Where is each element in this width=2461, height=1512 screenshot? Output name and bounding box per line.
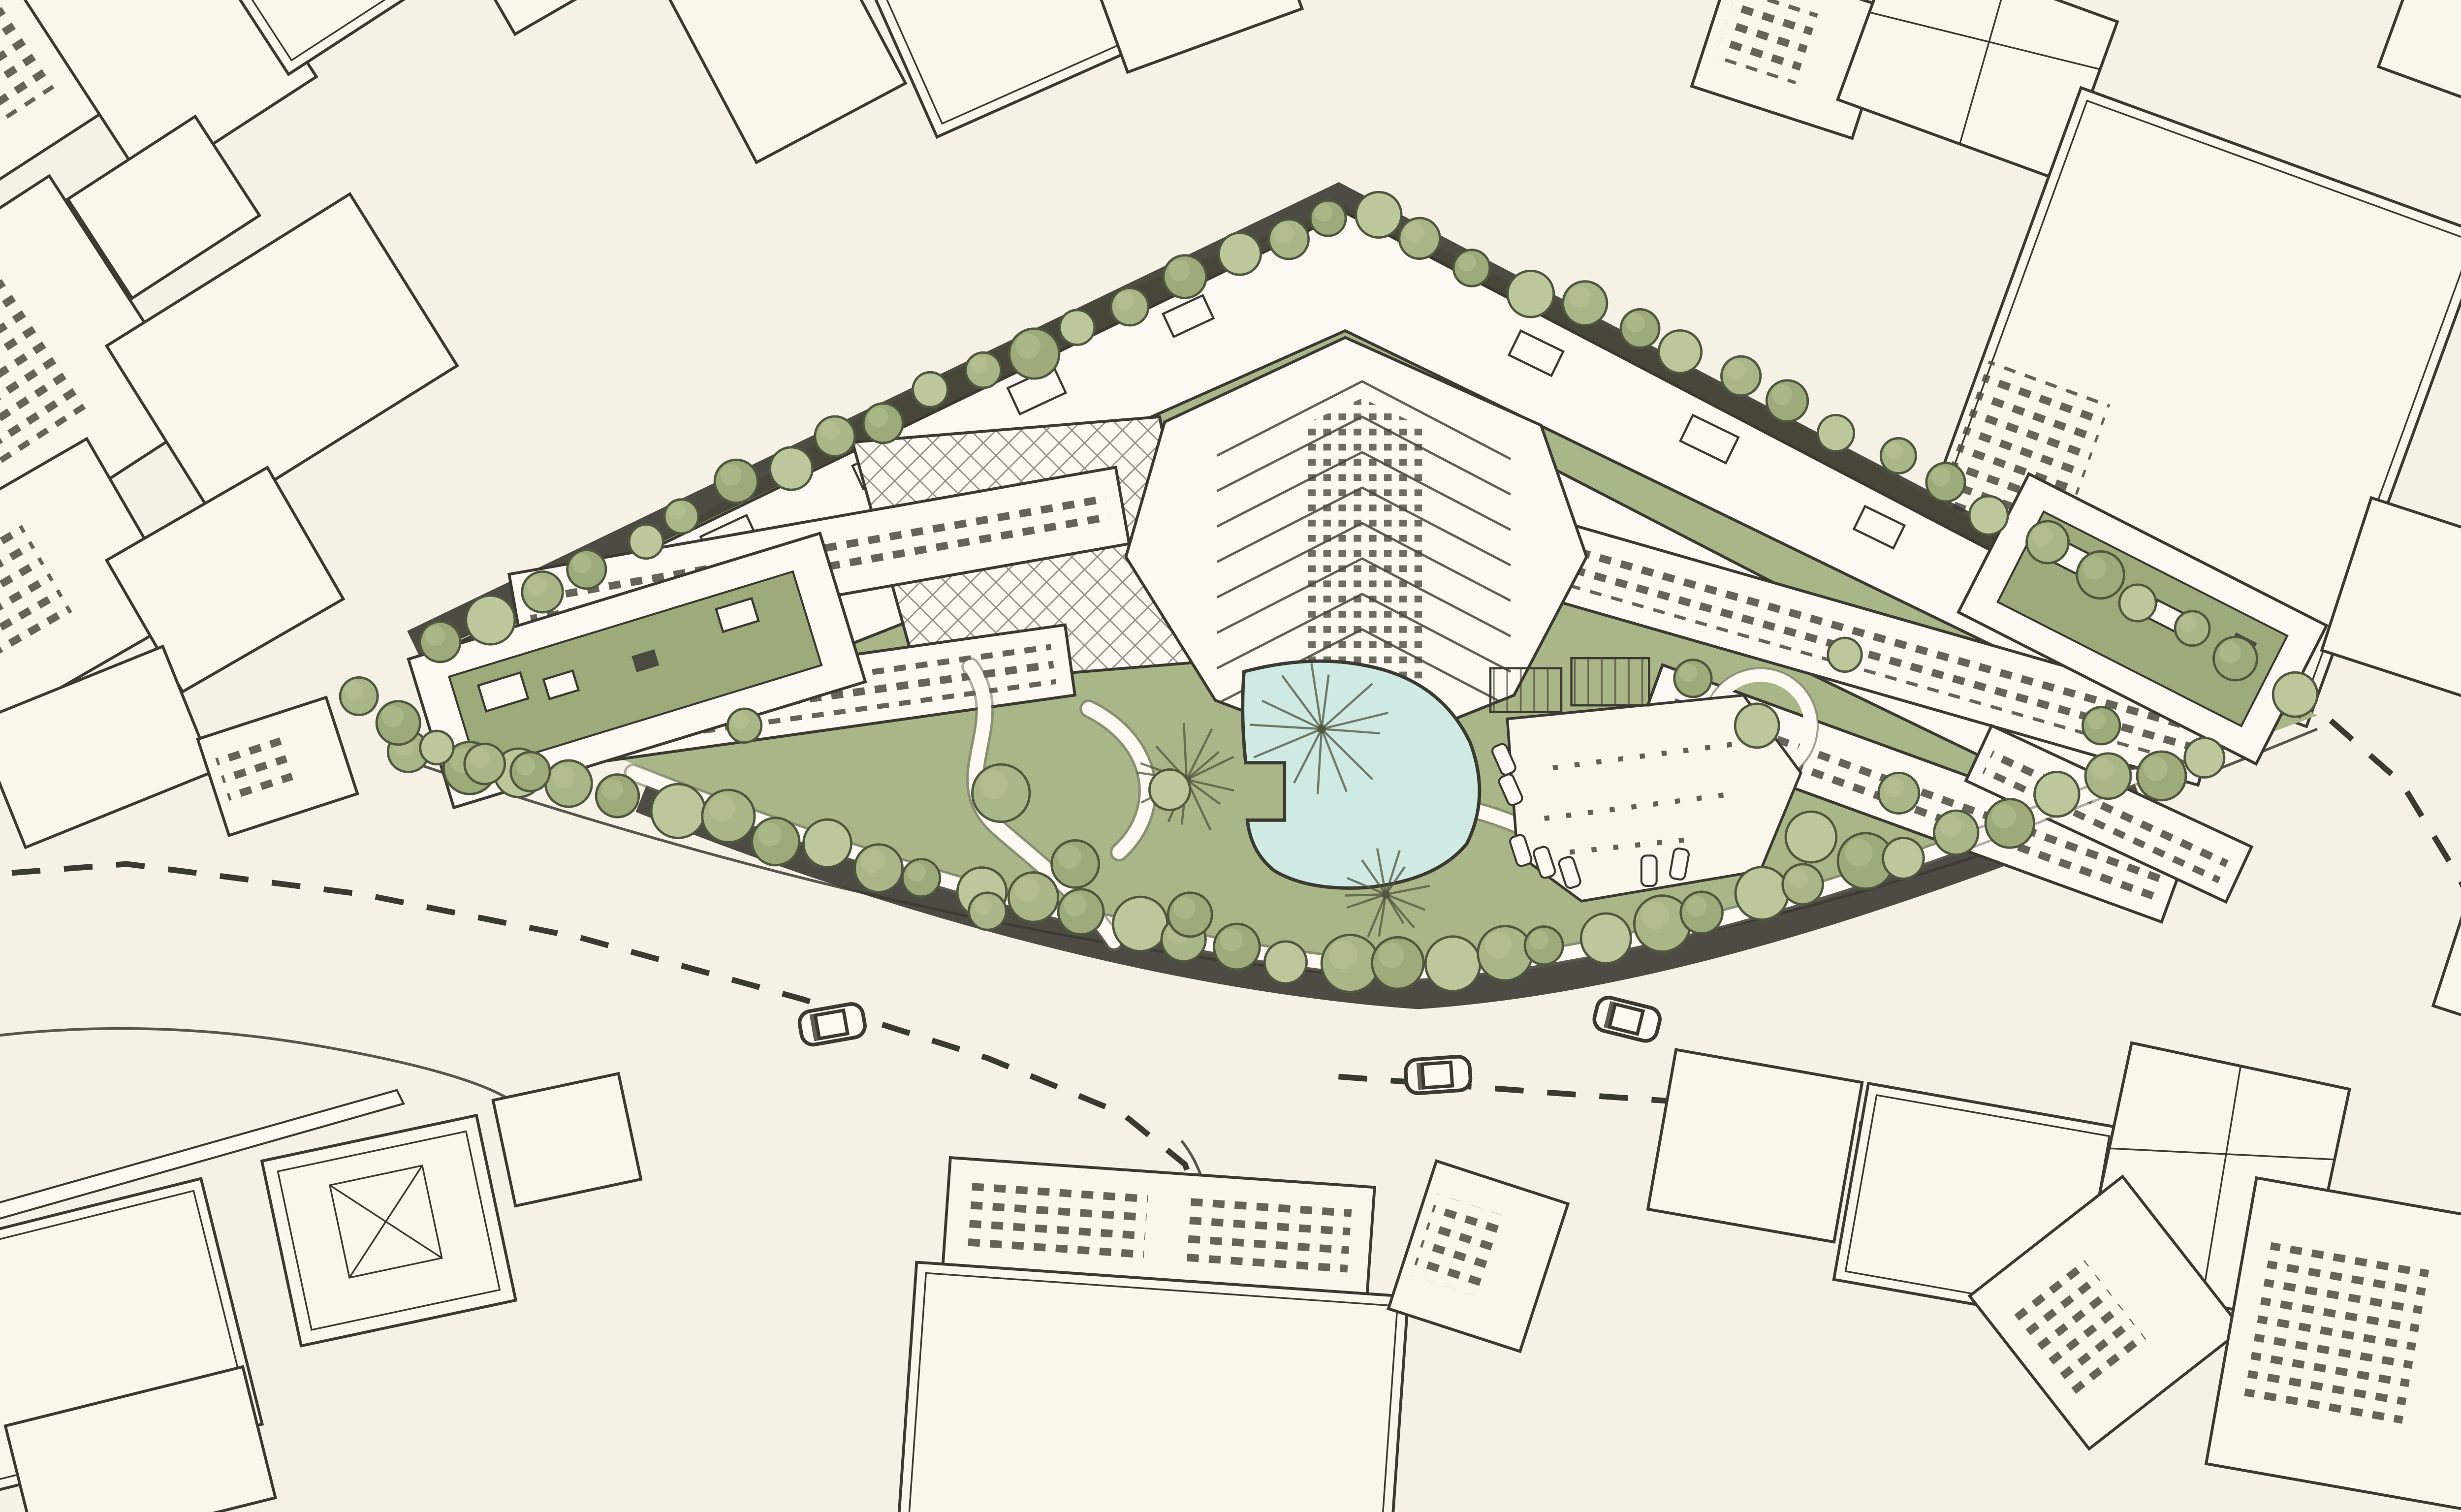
window-rows [2244,1239,2429,1424]
window-rows [1177,1196,1352,1280]
sun-lounger [1641,855,1657,886]
context-building [898,1262,1408,1512]
context-building [1648,1050,1862,1242]
windshield-line [1419,1063,1420,1090]
site-plan-drawing [0,0,2461,1512]
window-rows [966,1174,1149,1259]
car [1405,1056,1471,1094]
